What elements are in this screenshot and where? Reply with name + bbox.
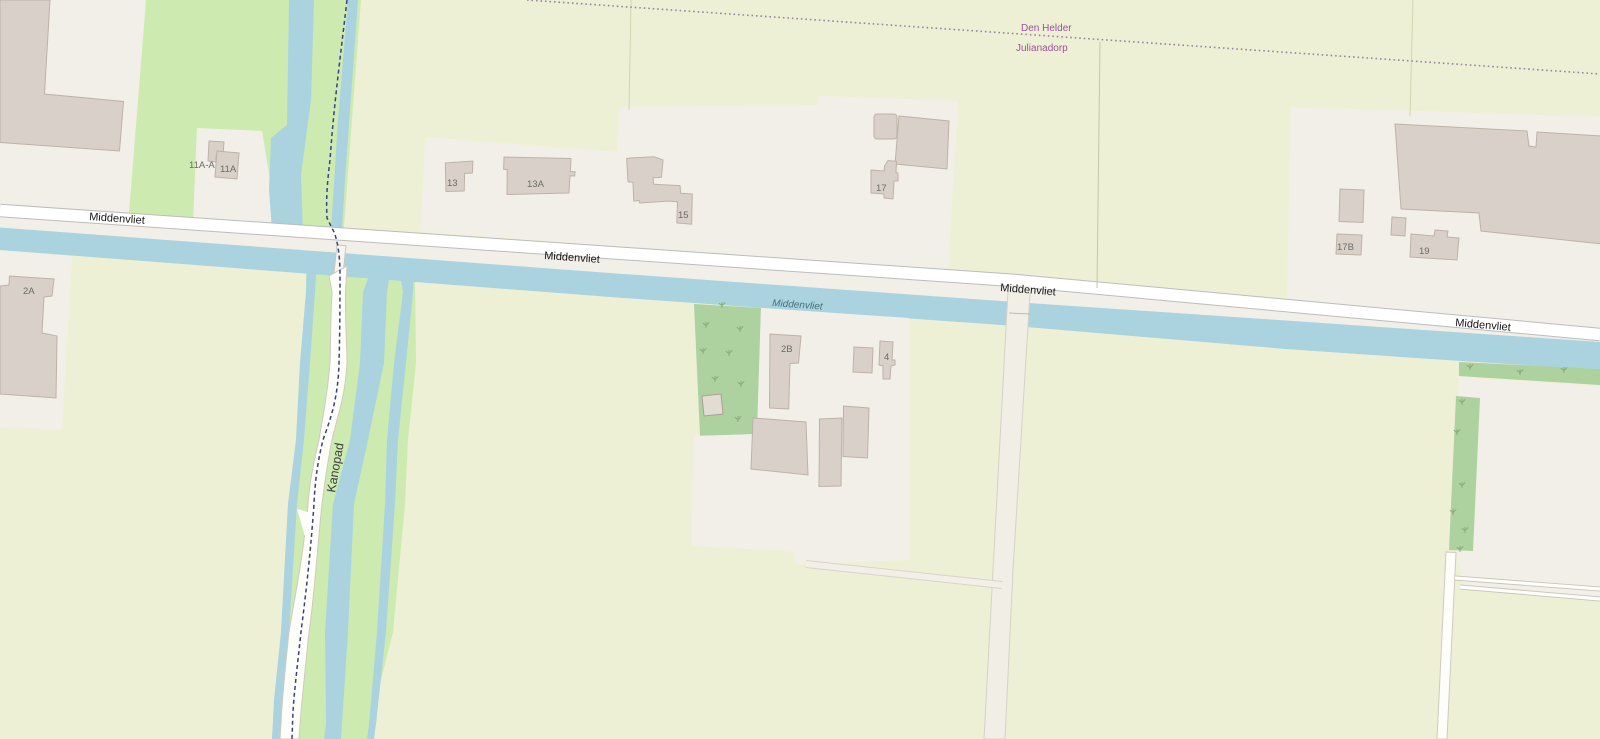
svg-text:13A: 13A [527,179,545,190]
svg-text:19: 19 [1419,246,1430,257]
svg-text:11A-A: 11A-A [189,160,215,171]
svg-text:4: 4 [884,352,889,363]
svg-text:11A: 11A [220,164,237,175]
svg-text:17B: 17B [1337,242,1354,253]
svg-text:2B: 2B [781,344,793,355]
svg-text:Den Helder: Den Helder [1021,23,1072,34]
svg-text:Julianadorp: Julianadorp [1016,43,1068,54]
svg-text:17: 17 [876,183,887,194]
svg-text:15: 15 [678,210,689,221]
svg-text:13: 13 [447,178,458,189]
svg-text:2A: 2A [23,286,35,297]
